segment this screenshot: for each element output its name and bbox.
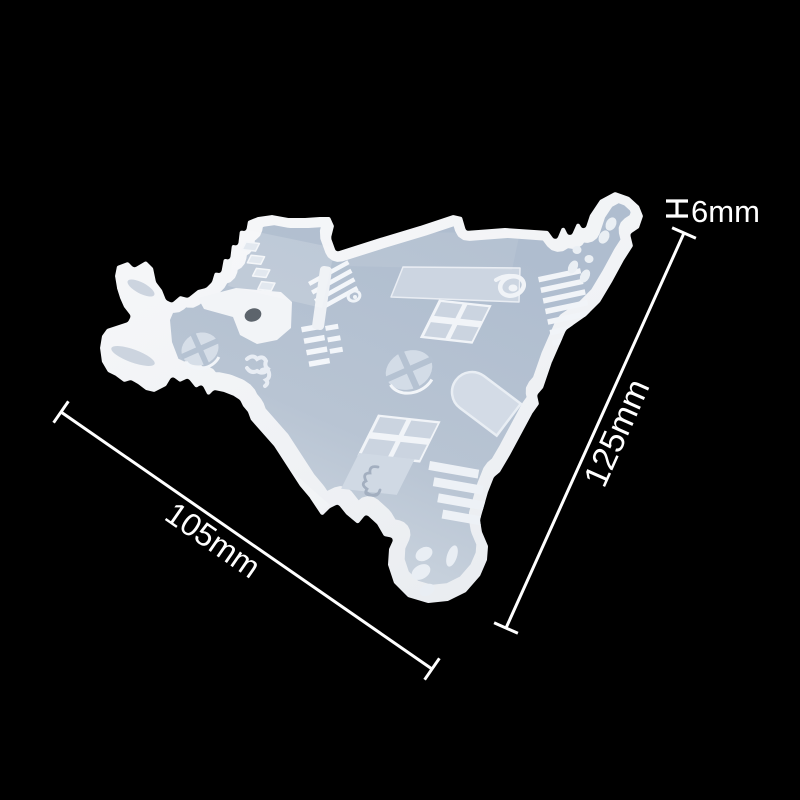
- svg-text:6mm: 6mm: [691, 194, 760, 229]
